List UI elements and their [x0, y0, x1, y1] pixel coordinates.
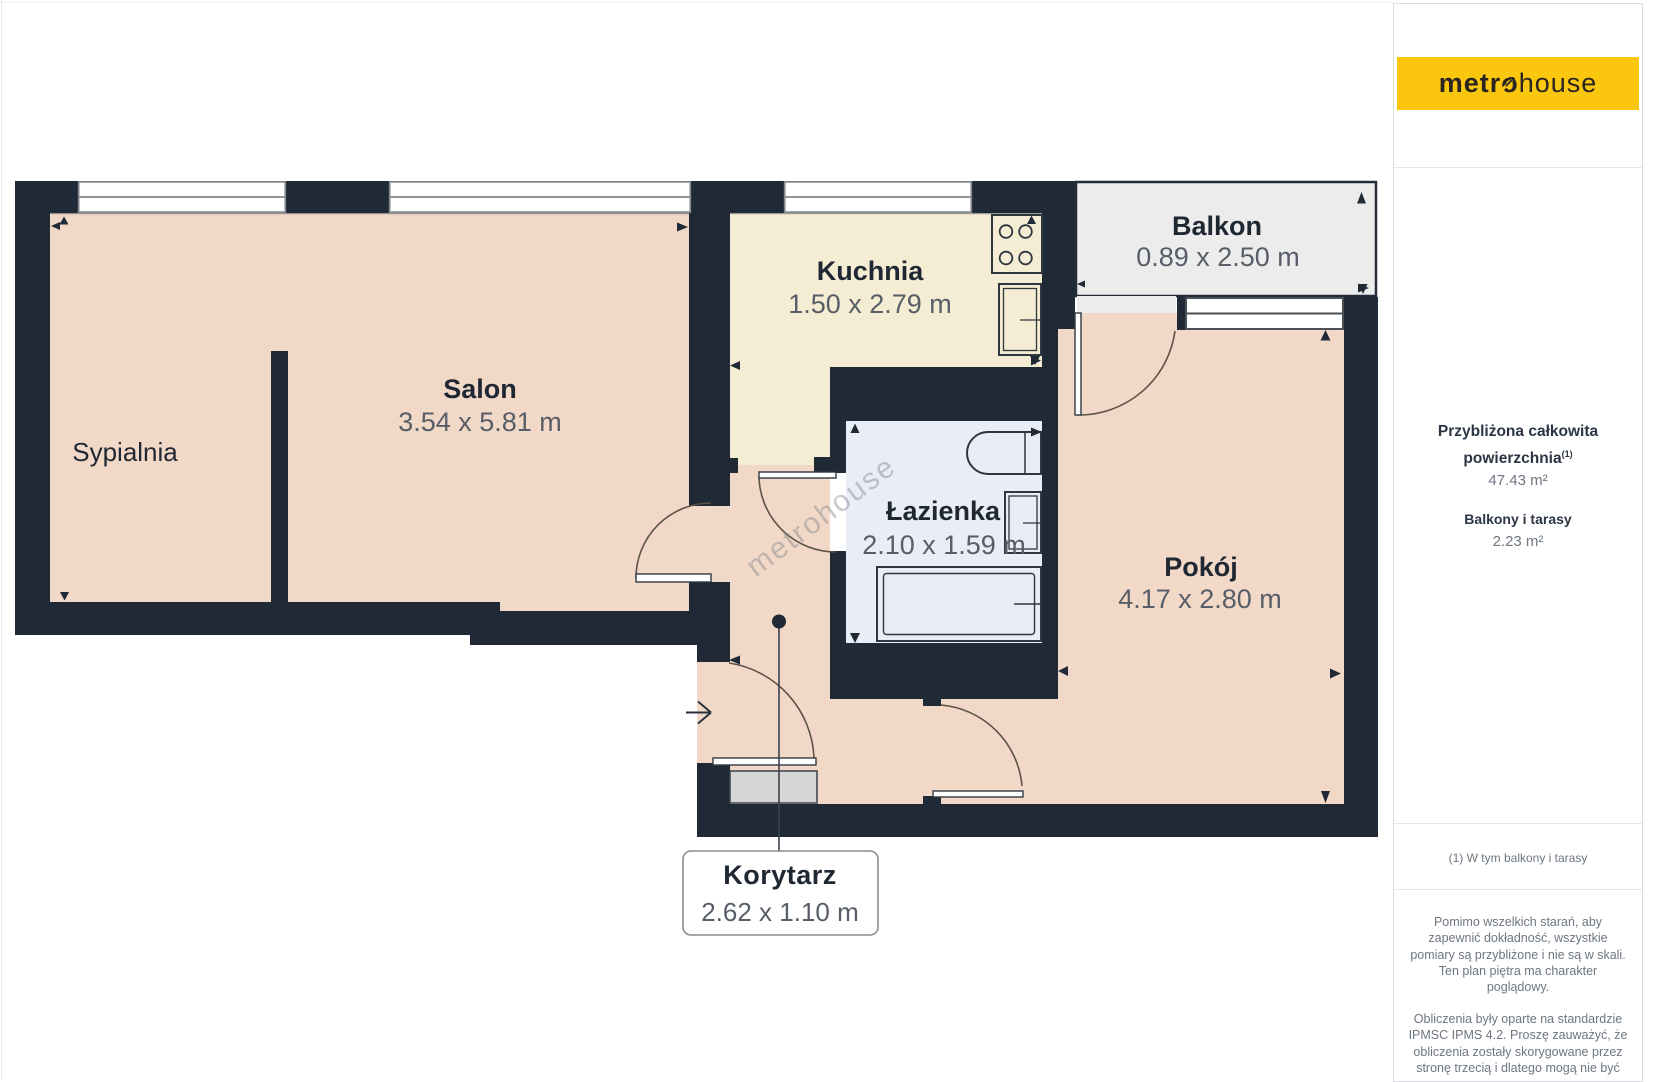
svg-text:1.50 x 2.79 m: 1.50 x 2.79 m: [788, 289, 952, 319]
svg-text:Sypialnia: Sypialnia: [72, 437, 178, 467]
svg-text:Łazienka: Łazienka: [886, 496, 1001, 526]
svg-text:Pokój: Pokój: [1164, 552, 1238, 582]
svg-text:2.62 x 1.10 m: 2.62 x 1.10 m: [701, 897, 859, 927]
svg-text:Balkon: Balkon: [1172, 211, 1262, 241]
svg-text:3.54 x 5.81 m: 3.54 x 5.81 m: [398, 407, 562, 437]
svg-text:Salon: Salon: [443, 374, 517, 404]
svg-text:0.89 x 2.50 m: 0.89 x 2.50 m: [1136, 242, 1300, 272]
svg-text:4.17 x 2.80 m: 4.17 x 2.80 m: [1118, 584, 1282, 614]
svg-text:Kuchnia: Kuchnia: [817, 256, 924, 286]
svg-text:Korytarz: Korytarz: [723, 860, 837, 890]
svg-text:2.10 x 1.59 m: 2.10 x 1.59 m: [862, 530, 1026, 560]
